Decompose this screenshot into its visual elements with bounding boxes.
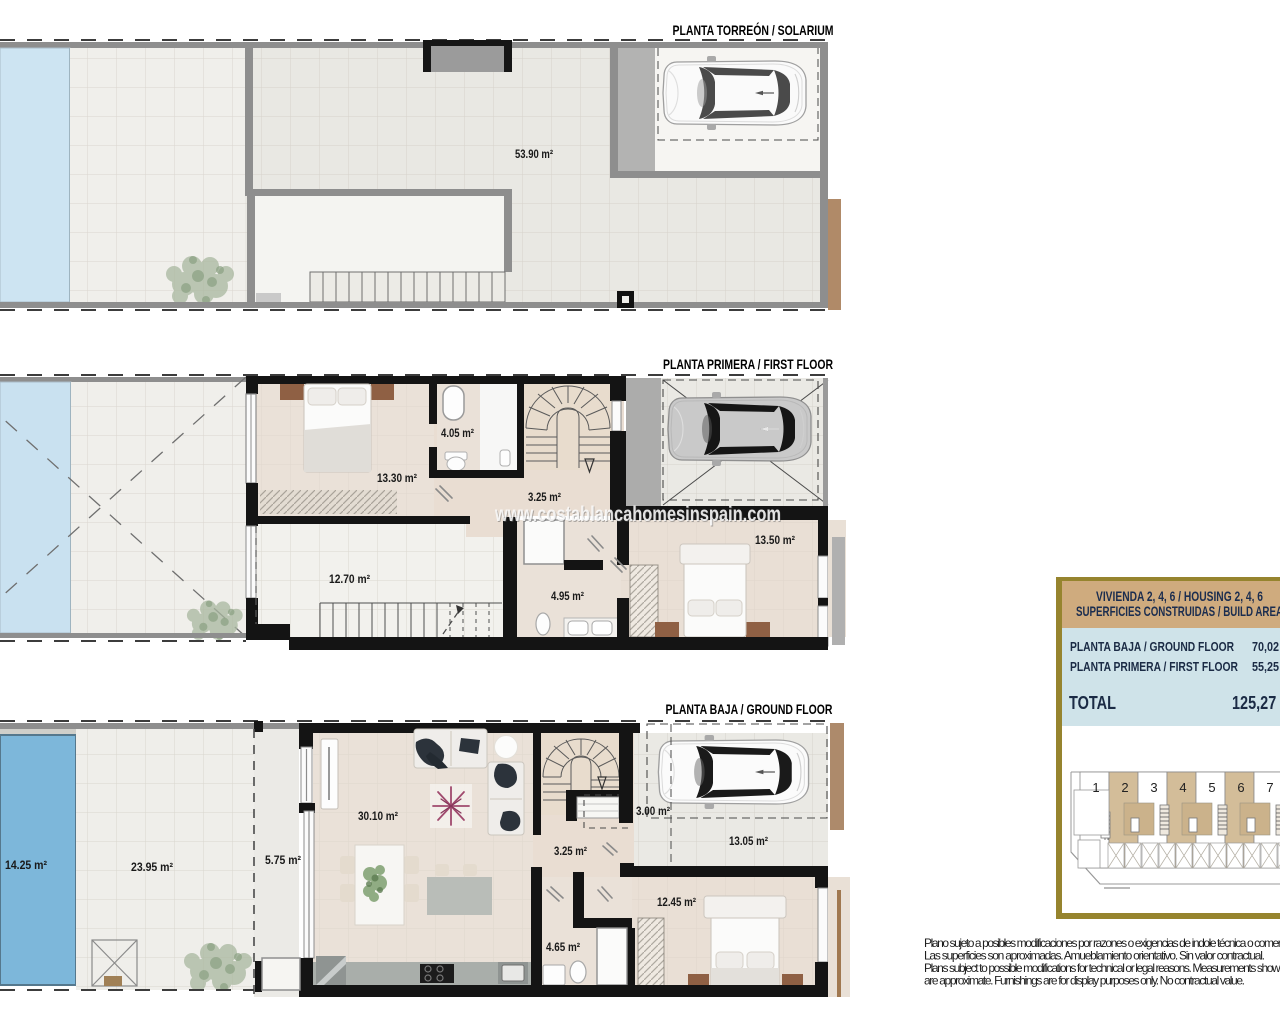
svg-text:30.10 m²: 30.10 m² <box>358 809 398 823</box>
svg-text:6: 6 <box>1237 780 1244 795</box>
svg-text:23.95 m²: 23.95 m² <box>131 860 173 874</box>
svg-text:70,02: 70,02 <box>1252 639 1279 654</box>
svg-text:12.45 m²: 12.45 m² <box>657 895 696 909</box>
svg-text:TOTAL: TOTAL <box>1069 692 1116 713</box>
svg-text:13.50 m²: 13.50 m² <box>755 533 795 547</box>
svg-text:4.95 m²: 4.95 m² <box>551 589 584 603</box>
svg-text:12.70 m²: 12.70 m² <box>329 572 370 586</box>
svg-text:14.25 m²: 14.25 m² <box>5 858 47 872</box>
svg-text:www.costablancahomesinspain.co: www.costablancahomesinspain.com <box>494 502 781 526</box>
svg-text:4.65 m²: 4.65 m² <box>546 940 580 954</box>
svg-text:7: 7 <box>1266 780 1273 795</box>
svg-text:3: 3 <box>1150 780 1157 795</box>
svg-text:are approximate. Furnishings a: are approximate. Furnishings are for dis… <box>924 974 1245 988</box>
svg-text:SUPERFICIES CONSTRUIDAS / BUIL: SUPERFICIES CONSTRUIDAS / BUILD AREA <box>1076 603 1280 619</box>
svg-text:VIVIENDA 2, 4, 6 / HOUSING 2,: VIVIENDA 2, 4, 6 / HOUSING 2, 4, 6 <box>1096 588 1263 604</box>
svg-text:PLANTA PRIMERA / FIRST FLOOR: PLANTA PRIMERA / FIRST FLOOR <box>663 356 833 372</box>
svg-text:PLANTA BAJA / GROUND FLOOR: PLANTA BAJA / GROUND FLOOR <box>1070 639 1234 654</box>
svg-text:PLANTA BAJA / GROUND FLOOR: PLANTA BAJA / GROUND FLOOR <box>666 701 833 717</box>
svg-text:3.00 m²: 3.00 m² <box>636 804 670 818</box>
svg-text:13.30 m²: 13.30 m² <box>377 471 417 485</box>
svg-text:53.90 m²: 53.90 m² <box>515 147 553 161</box>
svg-text:13.05 m²: 13.05 m² <box>729 834 768 848</box>
svg-text:4: 4 <box>1179 780 1186 795</box>
svg-text:2: 2 <box>1121 780 1128 795</box>
svg-text:PLANTA PRIMERA / FIRST FLOOR: PLANTA PRIMERA / FIRST FLOOR <box>1070 659 1238 674</box>
svg-text:PLANTA TORREÓN / SOLARIUM: PLANTA TORREÓN / SOLARIUM <box>673 21 834 38</box>
svg-text:4.05 m²: 4.05 m² <box>441 426 474 440</box>
svg-text:3.25 m²: 3.25 m² <box>554 844 587 858</box>
svg-text:55,25: 55,25 <box>1252 659 1279 674</box>
svg-text:5: 5 <box>1208 780 1215 795</box>
svg-text:1: 1 <box>1092 780 1099 795</box>
svg-text:125,27 m²: 125,27 m² <box>1232 692 1280 713</box>
svg-text:5.75 m²: 5.75 m² <box>265 853 301 867</box>
